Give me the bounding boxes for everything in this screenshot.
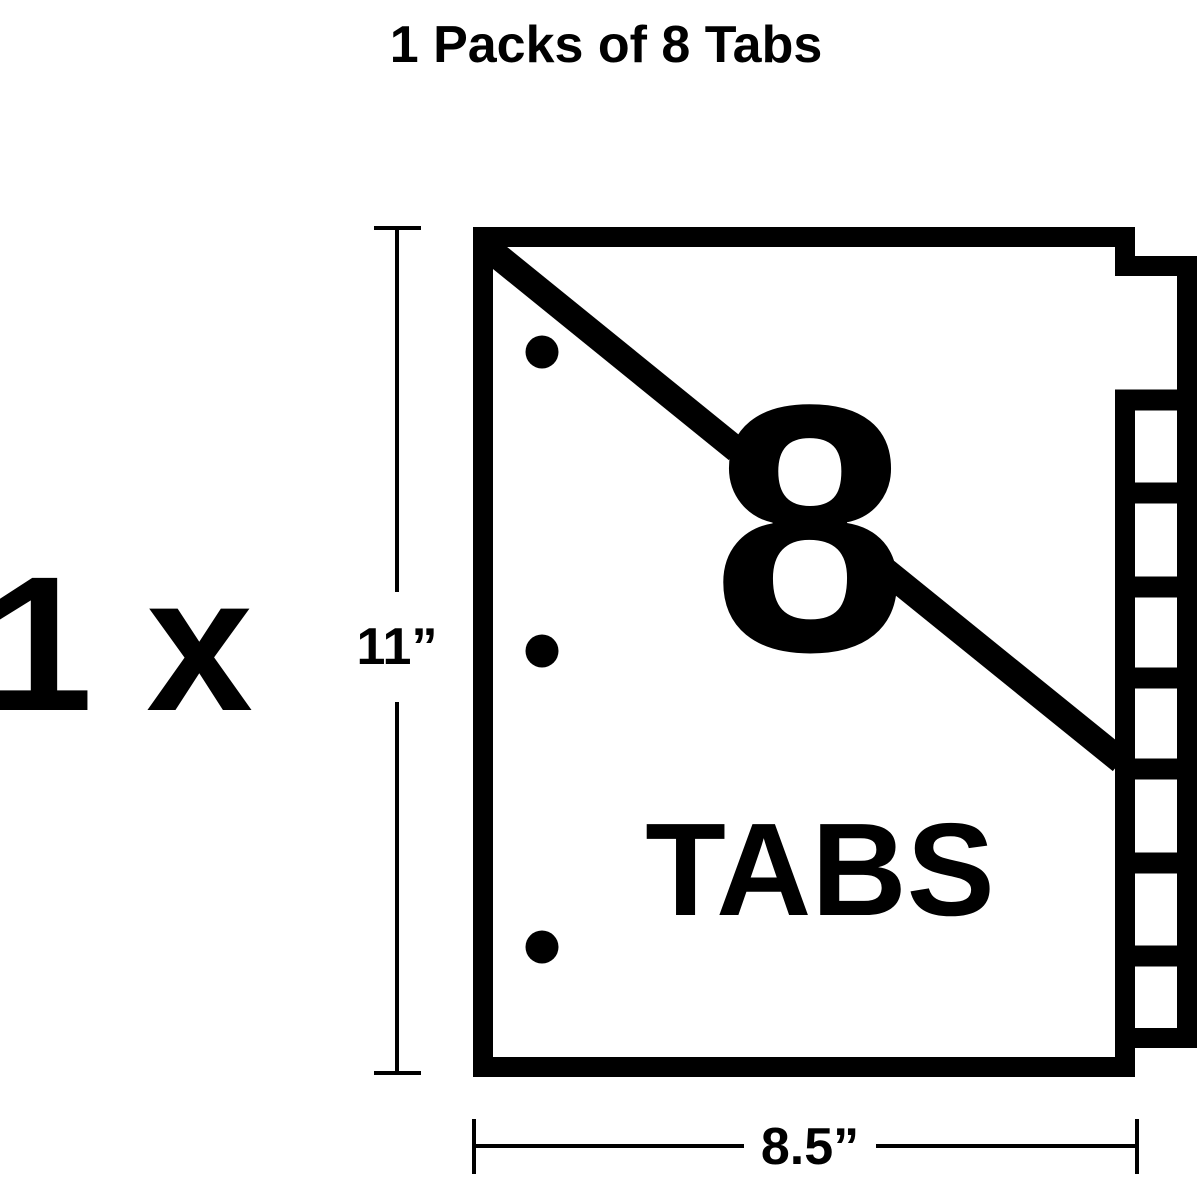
product-diagram: 1 Packs of 8 Tabs 1 x 8 [0, 0, 1200, 1200]
product-image: 1 Packs of 8 Tabs 1 x 8 [0, 0, 1200, 1200]
height-dimension: 11” [357, 228, 438, 1073]
punch-hole [526, 336, 559, 369]
divider-sheet: 8 TABS [483, 237, 1197, 1067]
tab-count-text: 8 [712, 331, 908, 725]
tabs-label: TABS [645, 796, 995, 943]
punch-hole [526, 635, 559, 668]
width-dimension-label: 8.5” [761, 1118, 859, 1176]
height-dimension-label: 11” [357, 618, 438, 676]
width-dimension: 8.5” [474, 1118, 1137, 1176]
quantity-label: 1 x [0, 536, 253, 751]
punch-hole [526, 931, 559, 964]
pack-count-title: 1 Packs of 8 Tabs [390, 16, 823, 74]
